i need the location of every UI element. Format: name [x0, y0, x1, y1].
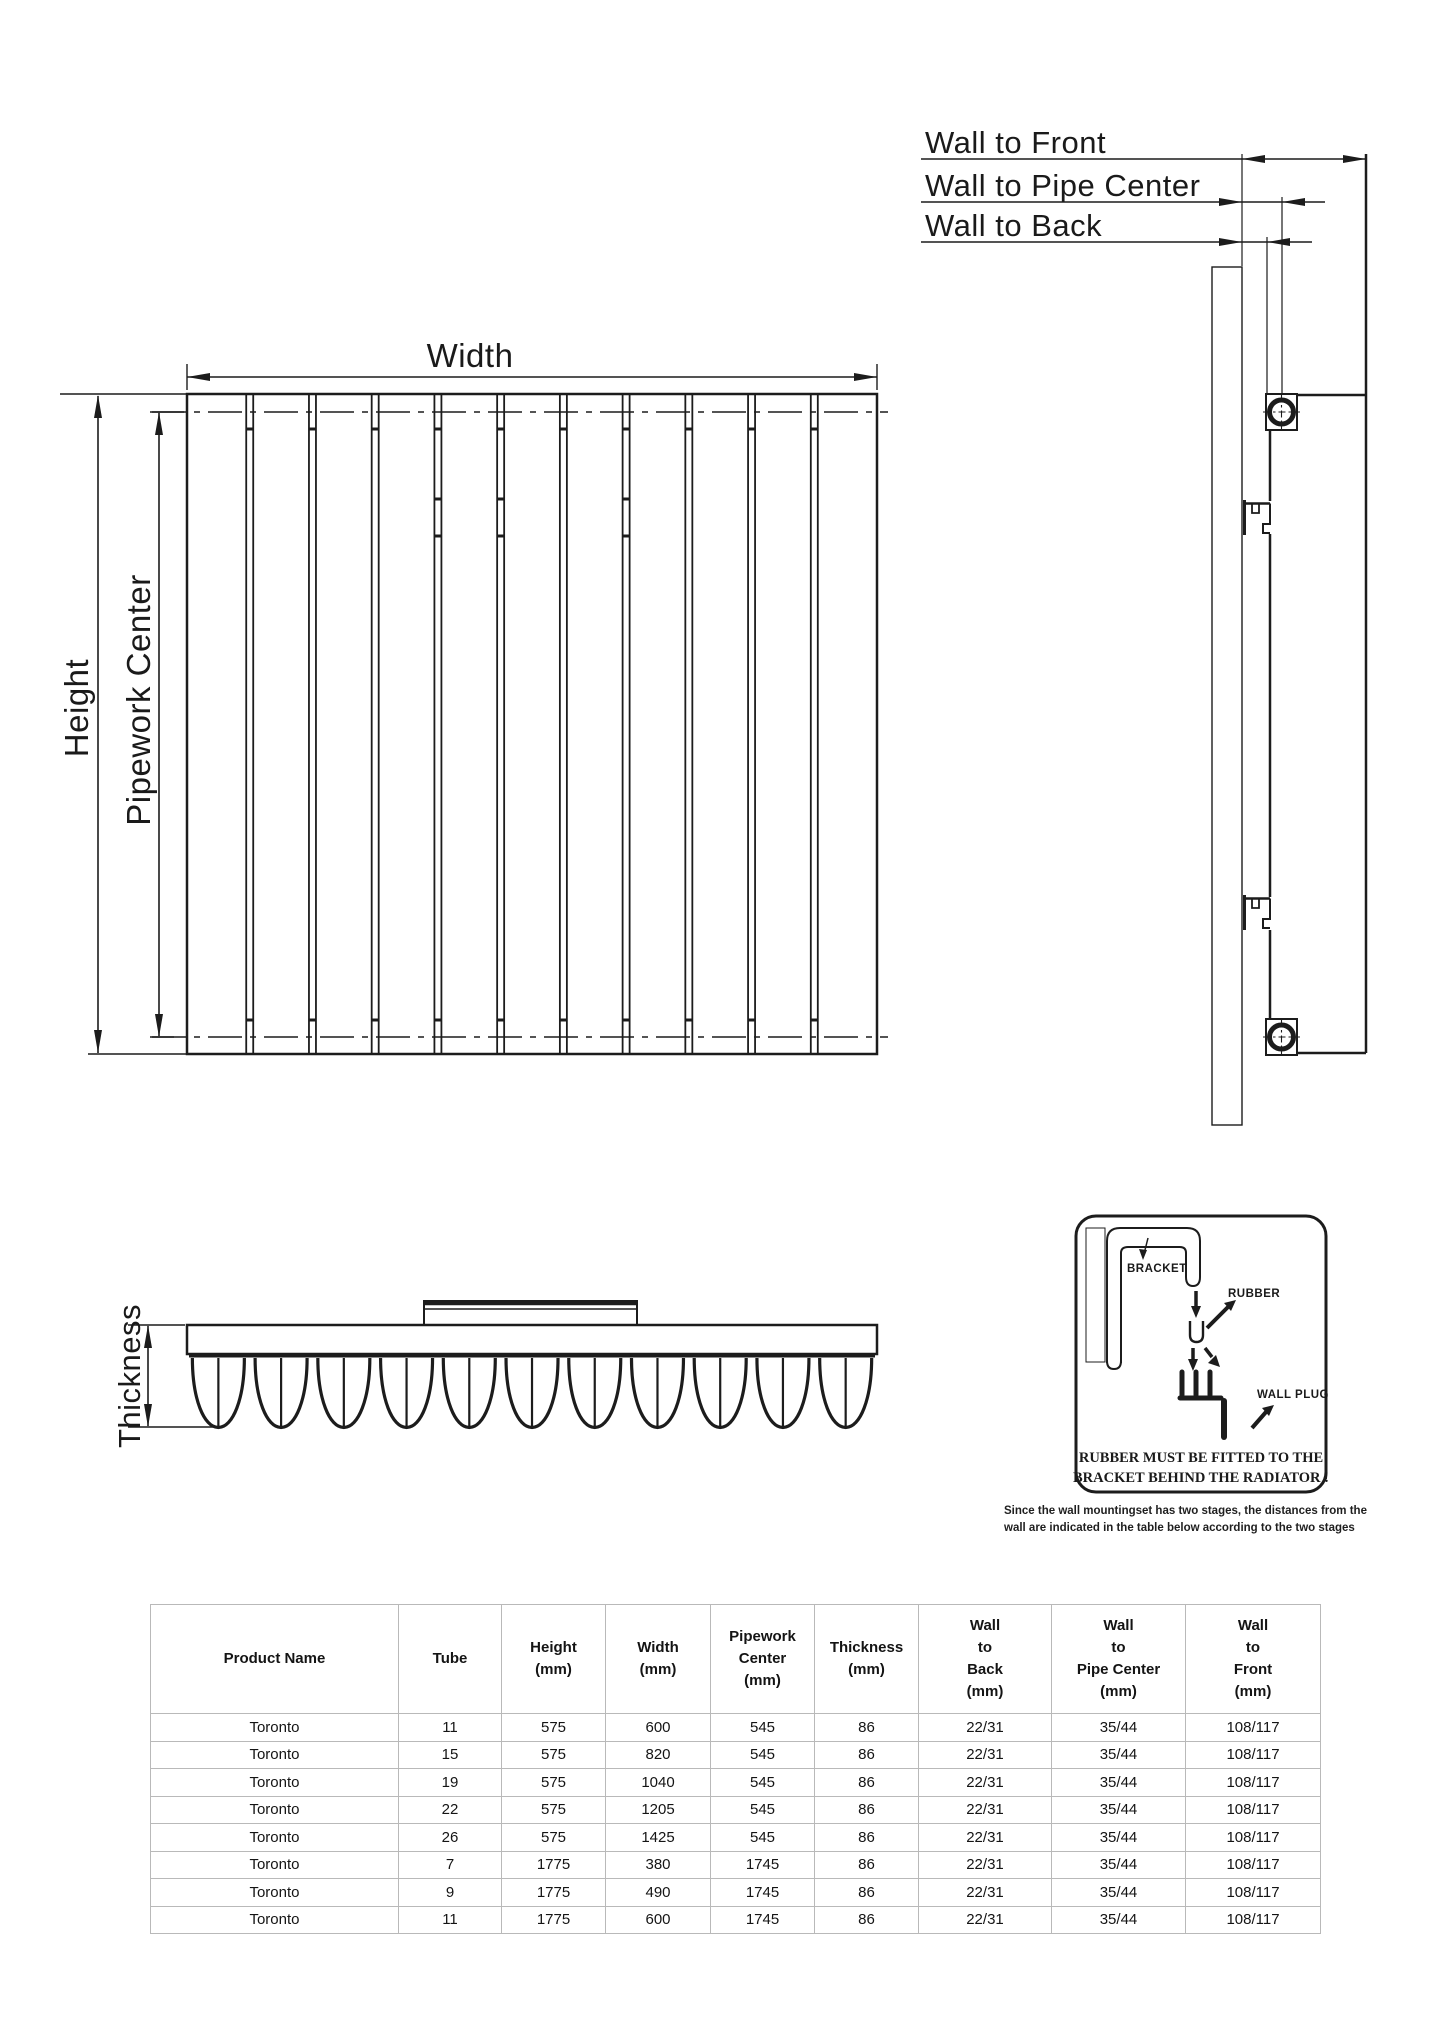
table-cell: 1775: [502, 1851, 606, 1879]
front-view: Width Height Pipework Center: [58, 337, 888, 1054]
top-view: Thickness: [112, 1301, 877, 1448]
table-cell: 545: [711, 1769, 815, 1797]
table-cell: 35/44: [1052, 1769, 1186, 1797]
table-cell: Toronto: [151, 1769, 399, 1797]
table-row: Toronto11177560017458622/3135/44108/117: [151, 1906, 1321, 1934]
table-cell: 22/31: [919, 1796, 1052, 1824]
pipe-connection-top: [1263, 394, 1300, 430]
table-cell: 1425: [606, 1824, 711, 1852]
table-cell: 545: [711, 1796, 815, 1824]
table-cell: 575: [502, 1769, 606, 1797]
table-cell: 86: [815, 1879, 919, 1907]
column-header: Height(mm): [502, 1605, 606, 1714]
column-header: WalltoPipe Center(mm): [1052, 1605, 1186, 1714]
note-line-2: wall are indicated in the table below ac…: [1003, 1522, 1355, 1534]
table-cell: 22/31: [919, 1851, 1052, 1879]
bracket-detail-box: RADIATOR BRACKET RUBBER WALL PLUG RUBBER…: [1073, 1216, 1329, 1492]
arrowhead: [1242, 155, 1265, 163]
table-cell: 86: [815, 1769, 919, 1797]
table-cell: 1775: [502, 1906, 606, 1934]
table-cell: 600: [606, 1906, 711, 1934]
table-cell: Toronto: [151, 1851, 399, 1879]
radiator-bar-label: RADIATOR: [1089, 1268, 1104, 1350]
table-cell: 820: [606, 1741, 711, 1769]
table-cell: 7: [399, 1851, 502, 1879]
table-row: Toronto9177549017458622/3135/44108/117: [151, 1879, 1321, 1907]
table-cell: 108/117: [1186, 1824, 1321, 1852]
wall-to-back-label: Wall to Back: [925, 208, 1102, 243]
table-cell: Toronto: [151, 1824, 399, 1852]
spec-table: Product NameTubeHeight(mm)Width(mm)Pipew…: [150, 1604, 1321, 1934]
table-cell: 35/44: [1052, 1741, 1186, 1769]
table-cell: 35/44: [1052, 1824, 1186, 1852]
table-cell: 108/117: [1186, 1879, 1321, 1907]
table-cell: 86: [815, 1796, 919, 1824]
mounting-note: Since the wall mountingset has two stage…: [1003, 1505, 1367, 1534]
table-cell: 575: [502, 1714, 606, 1742]
column-header: Thickness(mm): [815, 1605, 919, 1714]
table-cell: 35/44: [1052, 1906, 1186, 1934]
table-cell: 86: [815, 1824, 919, 1852]
table-cell: 86: [815, 1741, 919, 1769]
table-row: Toronto7177538017458622/3135/44108/117: [151, 1851, 1321, 1879]
spec-table-header: Product NameTubeHeight(mm)Width(mm)Pipew…: [151, 1605, 1321, 1714]
table-cell: 108/117: [1186, 1714, 1321, 1742]
table-cell: 600: [606, 1714, 711, 1742]
table-cell: 1775: [502, 1879, 606, 1907]
table-cell: 11: [399, 1906, 502, 1934]
table-cell: 22/31: [919, 1879, 1052, 1907]
thickness-label: Thickness: [112, 1304, 147, 1448]
table-cell: 35/44: [1052, 1851, 1186, 1879]
arrowhead: [187, 373, 210, 381]
bracket-label: BRACKET: [1127, 1263, 1187, 1275]
arrowhead: [94, 395, 102, 418]
table-cell: 35/44: [1052, 1714, 1186, 1742]
radiator-spec-sheet: Width Height Pipework Center: [0, 0, 1445, 2044]
arrowhead: [94, 1030, 102, 1053]
arrowhead: [1267, 238, 1290, 246]
table-cell: Toronto: [151, 1906, 399, 1934]
table-cell: 108/117: [1186, 1851, 1321, 1879]
table-cell: 86: [815, 1906, 919, 1934]
table-cell: 35/44: [1052, 1796, 1186, 1824]
side-view: Wall to Front Wall to Pipe Center Wall t…: [921, 125, 1366, 1125]
table-cell: 9: [399, 1879, 502, 1907]
table-cell: 1745: [711, 1906, 815, 1934]
table-cell: 108/117: [1186, 1796, 1321, 1824]
warning-line-1: RUBBER MUST BE FITTED TO THE: [1079, 1450, 1323, 1466]
table-cell: 22/31: [919, 1741, 1052, 1769]
table-cell: 575: [502, 1824, 606, 1852]
column-header: PipeworkCenter(mm): [711, 1605, 815, 1714]
table-row: Toronto2657514255458622/3135/44108/117: [151, 1824, 1321, 1852]
table-cell: 22/31: [919, 1824, 1052, 1852]
table-cell: 545: [711, 1824, 815, 1852]
column-header: Product Name: [151, 1605, 399, 1714]
height-label: Height: [58, 659, 95, 757]
radiator-top-outline: [187, 1325, 877, 1354]
table-cell: 1745: [711, 1879, 815, 1907]
column-header: WalltoFront(mm): [1186, 1605, 1321, 1714]
arrowhead: [155, 412, 163, 435]
table-cell: 108/117: [1186, 1741, 1321, 1769]
column-header: Tube: [399, 1605, 502, 1714]
header-row: Product NameTubeHeight(mm)Width(mm)Pipew…: [151, 1605, 1321, 1714]
arrowhead: [1343, 155, 1366, 163]
wall-plug-label: WALL PLUG: [1257, 1389, 1329, 1401]
column-header: WalltoBack(mm): [919, 1605, 1052, 1714]
table-row: Toronto155758205458622/3135/44108/117: [151, 1741, 1321, 1769]
table-cell: 86: [815, 1851, 919, 1879]
arrowhead: [1219, 198, 1242, 206]
table-row: Toronto2257512055458622/3135/44108/117: [151, 1796, 1321, 1824]
fins: [192, 1358, 871, 1428]
table-cell: Toronto: [151, 1714, 399, 1742]
table-cell: 15: [399, 1741, 502, 1769]
table-cell: 22/31: [919, 1906, 1052, 1934]
table-cell: 19: [399, 1769, 502, 1797]
rubber-label: RUBBER: [1228, 1288, 1280, 1300]
table-row: Toronto1957510405458622/3135/44108/117: [151, 1769, 1321, 1797]
table-cell: 575: [502, 1796, 606, 1824]
wall-to-pipe-center-label: Wall to Pipe Center: [925, 168, 1200, 203]
table-cell: 1205: [606, 1796, 711, 1824]
wall-bracket-bottom: [1245, 895, 1271, 930]
table-cell: 1745: [711, 1851, 815, 1879]
wall-to-front-label: Wall to Front: [925, 125, 1106, 160]
table-row: Toronto115756005458622/3135/44108/117: [151, 1714, 1321, 1742]
table-cell: Toronto: [151, 1741, 399, 1769]
spec-table-body: Toronto115756005458622/3135/44108/117Tor…: [151, 1714, 1321, 1934]
wall-section: [1212, 267, 1242, 1125]
wall-bracket-top: [1245, 500, 1271, 535]
radiator-front-outline: [187, 394, 877, 1054]
table-cell: 108/117: [1186, 1906, 1321, 1934]
arrowhead: [854, 373, 877, 381]
width-label: Width: [427, 337, 514, 374]
table-cell: 545: [711, 1741, 815, 1769]
table-cell: 35/44: [1052, 1879, 1186, 1907]
table-cell: 1040: [606, 1769, 711, 1797]
arrowhead: [1219, 238, 1242, 246]
table-cell: 86: [815, 1714, 919, 1742]
arrowhead: [155, 1014, 163, 1037]
column-header: Width(mm): [606, 1605, 711, 1714]
table-cell: 22: [399, 1796, 502, 1824]
table-cell: 26: [399, 1824, 502, 1852]
table-cell: 380: [606, 1851, 711, 1879]
warning-line-2: BRACKET BEHIND THE RADIATOR !: [1073, 1470, 1329, 1486]
table-cell: 22/31: [919, 1714, 1052, 1742]
pipework-center-label: Pipework Center: [120, 574, 157, 825]
arrowhead: [1282, 198, 1305, 206]
table-cell: 545: [711, 1714, 815, 1742]
table-cell: 490: [606, 1879, 711, 1907]
table-cell: 11: [399, 1714, 502, 1742]
table-cell: 575: [502, 1741, 606, 1769]
table-cell: 22/31: [919, 1769, 1052, 1797]
table-cell: 108/117: [1186, 1769, 1321, 1797]
note-line-1: Since the wall mountingset has two stage…: [1004, 1505, 1367, 1517]
table-cell: Toronto: [151, 1796, 399, 1824]
table-cell: Toronto: [151, 1879, 399, 1907]
pipe-connection-bottom: [1263, 1019, 1300, 1055]
